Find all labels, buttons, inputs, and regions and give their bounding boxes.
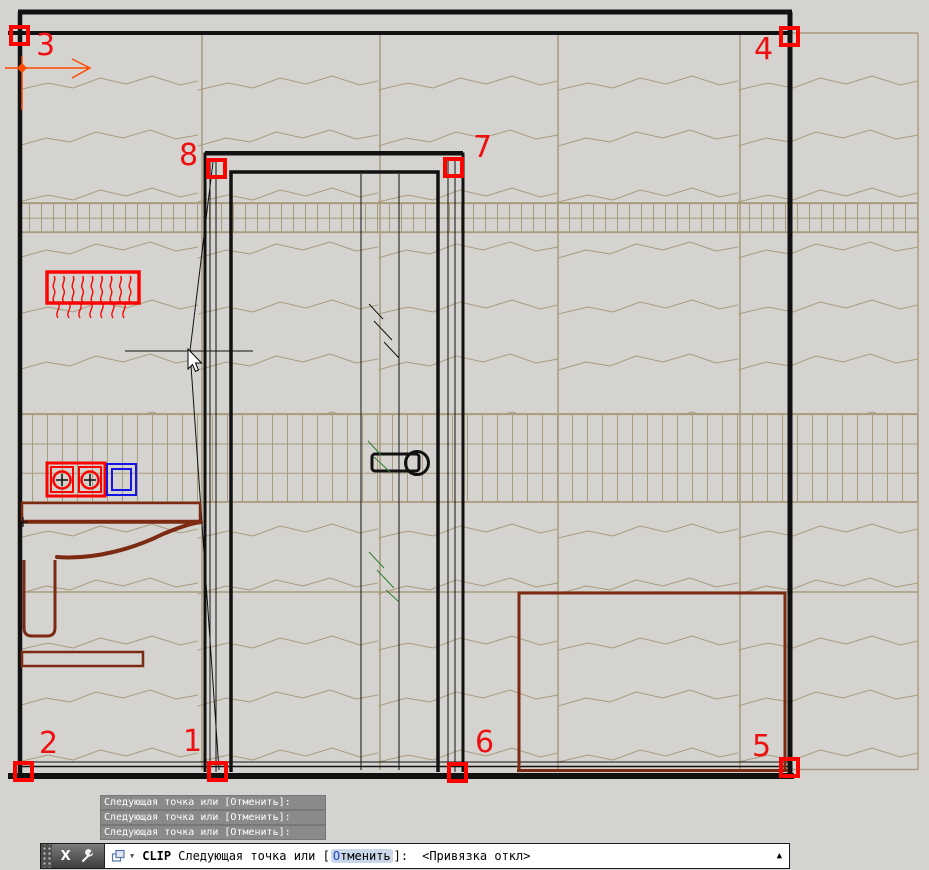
command-line-bar[interactable]: X ▼ CLIP Следующая точка или [ Отменить …	[40, 843, 790, 869]
clip-point-label-4: 4	[754, 35, 773, 65]
command-prompt-text: Следующая точка или [	[178, 849, 330, 863]
clip-point-label-6: 6	[475, 728, 494, 758]
wall-elevation-drawing	[0, 0, 929, 790]
clip-point-label-1: 1	[183, 727, 202, 757]
clip-grip-3[interactable]	[9, 25, 30, 46]
command-history-line: Следующая точка или [Отменить]:	[100, 810, 326, 825]
drawing-canvas[interactable]	[0, 0, 929, 790]
command-prompt-area[interactable]: ▼ CLIP Следующая точка или [ Отменить ]:…	[105, 844, 789, 868]
active-command-name: CLIP	[142, 849, 171, 863]
clip-grip-4[interactable]	[779, 26, 800, 47]
clip-point-label-3: 3	[36, 31, 55, 61]
clip-grip-5[interactable]	[779, 757, 800, 778]
clip-grip-7[interactable]	[443, 157, 464, 178]
recent-commands-icon[interactable]	[111, 849, 128, 864]
commandline-drag-handle[interactable]	[41, 844, 52, 868]
clip-point-label-5: 5	[752, 732, 771, 762]
cad-screenshot: { "markers": ["1","2","3","4","5","6","7…	[0, 0, 929, 870]
wrench-icon[interactable]	[79, 848, 95, 864]
command-option-chip[interactable]: Отменить	[331, 849, 393, 863]
clip-grip-8[interactable]	[206, 158, 227, 179]
clip-point-label-8: 8	[179, 141, 198, 171]
osnap-status-hint: <Привязка откл>	[422, 849, 530, 863]
commandline-close-button[interactable]: X	[61, 850, 71, 863]
commandline-expand-arrow[interactable]: ▲	[777, 852, 782, 861]
command-prompt-suffix: ]:	[394, 849, 408, 863]
clip-grip-2[interactable]	[13, 761, 34, 782]
option-rest: тменить	[340, 849, 391, 863]
clip-point-label-7: 7	[473, 133, 492, 163]
plaster-hatch	[18, 33, 918, 770]
command-history-line: Следующая точка или [Отменить]:	[100, 795, 326, 810]
clip-point-label-2: 2	[39, 729, 58, 759]
clip-grip-6[interactable]	[447, 762, 468, 783]
option-hotkey-letter: О	[333, 849, 340, 863]
command-history-line: Следующая точка или [Отменить]:	[100, 825, 326, 840]
recent-commands-dropdown-icon[interactable]: ▼	[130, 852, 134, 860]
clip-grip-1[interactable]	[207, 761, 228, 782]
commandline-toolbar: X	[52, 844, 105, 868]
